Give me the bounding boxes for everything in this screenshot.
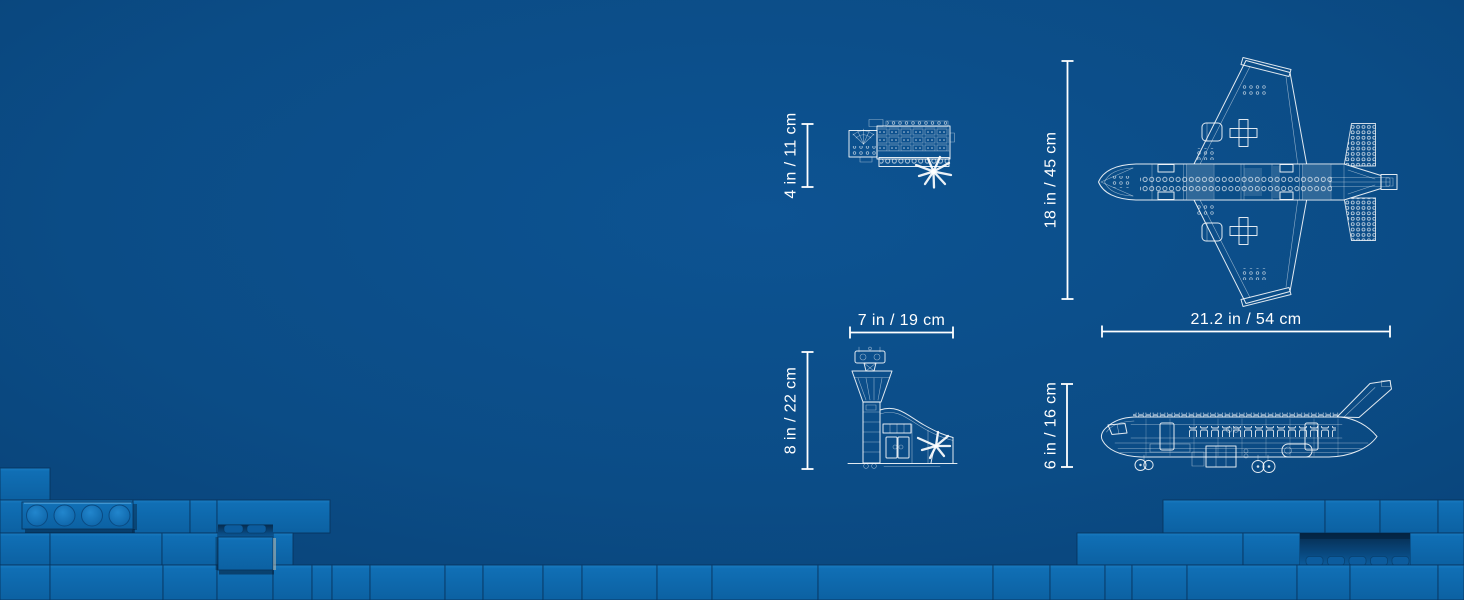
lego-brick [133,500,190,533]
lego-brick [1438,500,1464,533]
missing-brick-recess [1300,533,1410,566]
stud-top [1328,557,1345,566]
lego-brick [0,468,50,500]
lego-brick [50,533,162,565]
dim-label-tower-width: 7 in / 19 cm [858,312,946,329]
lego-brick [1243,533,1300,565]
stud-top [1371,557,1388,566]
product-dimensions-scene: 4 in / 11 cm 18 in / 45 cm 21.2 in / 54 … [0,0,1464,600]
lego-brick [1410,533,1464,565]
lego-brick [162,533,218,565]
slipped-brick [216,537,277,575]
fuselage-top-view [1099,164,1398,200]
stud-face [109,505,130,526]
stud-face [54,505,75,526]
lego-brick [190,500,217,533]
lego-brick [1325,500,1380,533]
stud-face [82,505,103,526]
window-band [1186,426,1336,437]
dim-label-terminal-depth: 4 in / 11 cm [783,112,800,198]
lego-brick [1077,533,1243,565]
lego-brick [1380,500,1438,533]
stud-top [1392,557,1409,566]
fuselage-stud-rows [1140,173,1332,191]
stud-top [247,525,266,533]
lego-brick [0,533,50,565]
dim-label-plane-height: 6 in / 16 cm [1043,382,1060,470]
dim-label-tower-height: 8 in / 22 cm [783,367,800,455]
studded-plate [22,502,137,533]
stud-top [1349,557,1366,566]
stud-top [224,525,243,533]
dim-label-plane-wingspan: 18 in / 45 cm [1043,132,1060,229]
blueprint-canvas: 4 in / 11 cm 18 in / 45 cm 21.2 in / 54 … [0,0,1464,600]
top-stud-row [1133,413,1339,418]
lego-brick [1163,500,1325,533]
dim-label-plane-length: 21.2 in / 54 cm [1191,311,1302,328]
stud-top [1306,557,1323,566]
stud-face [27,505,48,526]
